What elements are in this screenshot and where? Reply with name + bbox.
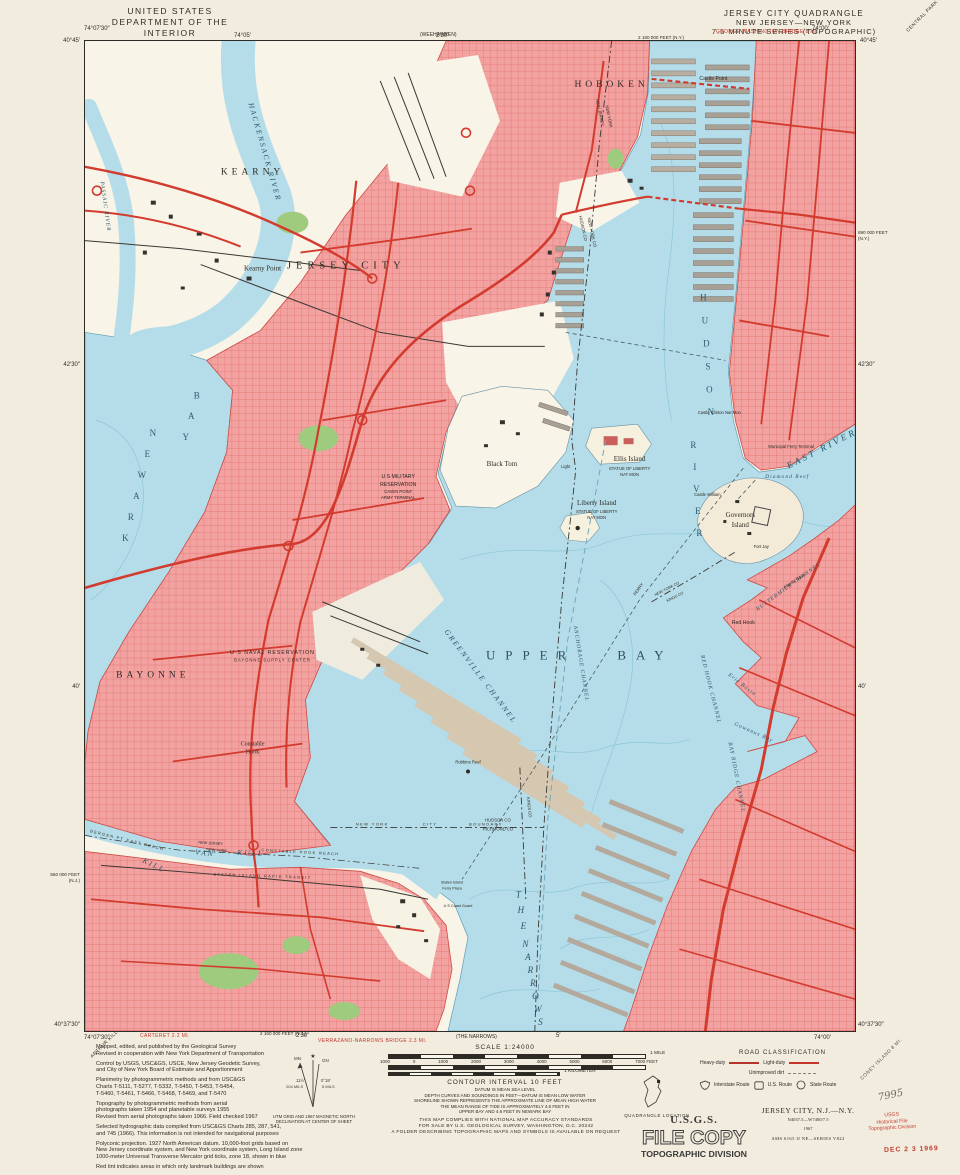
quad-title: JERSEY CITY QUADRANGLE: [686, 9, 902, 18]
label-castle-clinton: Castle Clinton Nat Mon: [698, 410, 742, 415]
scale-label: SCALE 1:24000: [455, 1044, 555, 1051]
label-naval-reservation: U S NAVAL RESERVATION: [230, 650, 315, 656]
label-constable-2: Hook: [246, 750, 259, 756]
feet-tick: 1000: [380, 1059, 390, 1064]
interstate-label: Interstate Route: [714, 1082, 750, 1088]
quad-state: NEW JERSEY—NEW YORK: [686, 18, 902, 27]
label-castle-point: Castle Point: [699, 76, 727, 82]
sheet-title: JERSEY CITY, N.J.—N.Y.: [752, 1106, 864, 1115]
us-route-label: U.S. Route: [768, 1082, 792, 1088]
label-military-1: U S MILITARY: [381, 474, 415, 480]
label-military-4: ARMY TERMINAL: [381, 495, 416, 500]
state-route-circle-icon: [796, 1080, 806, 1090]
accuracy-note: THIS MAP COMPLIES WITH NATIONAL MAP ACCU…: [356, 1118, 656, 1136]
corner-br-lat: 40°37′30″: [858, 1022, 884, 1028]
tick-top-1: 74°05′: [234, 33, 251, 39]
label-kearny-point: Kearny Point: [244, 265, 281, 273]
heavy-duty-label: Heavy-duty: [700, 1060, 725, 1066]
unimproved-label: Unimproved dirt: [749, 1070, 784, 1076]
label-jersey-city: JERSEY CITY: [287, 261, 406, 272]
label-bayonne: BAYONNE: [116, 671, 189, 681]
datum-notes: DATUM IS MEAN SEA LEVEL DEPTH CURVES AND…: [360, 1087, 650, 1115]
label-black-tom: Black Tom: [487, 460, 518, 468]
label-ellis-statue: STATUE OF LIBERTY: [609, 466, 651, 471]
interstate-shield-icon: [700, 1080, 710, 1090]
label-richmond-co: RICHMOND CO: [483, 826, 514, 831]
statue-of-liberty-symbol: [576, 526, 580, 530]
scale-bar-mile: [388, 1054, 646, 1059]
us-route-shield-icon: [754, 1081, 764, 1090]
adjoining-quad-ne: CENTRAL PARK: [906, 0, 939, 33]
contour-interval: CONTOUR INTERVAL 10 FEET: [400, 1079, 610, 1086]
label-hoboken: HOBOKEN: [575, 80, 649, 90]
quadrangle-location-diagram: [636, 1074, 678, 1112]
label-hudson-co-2: HUDSON CO: [485, 817, 511, 822]
light-duty-line-icon: [789, 1062, 819, 1063]
mn-label: MN: [294, 1056, 301, 1061]
label-governors-1: Governors: [726, 511, 756, 519]
feet-tick: 4000: [537, 1059, 547, 1064]
corner-tl-lon: 74°07′30″: [84, 26, 110, 32]
map-canvas: KEARNY Kearny Point HACKENSACK RIVER PAS…: [85, 41, 855, 1031]
feet-tick: 7000 FEET: [635, 1059, 658, 1064]
mn-angle: 11½°: [296, 1078, 306, 1083]
road-note-carteret: CARTERET 2.2 MI.: [140, 1033, 190, 1039]
road-note-verrazano: VERRAZANO-NARROWS BRIDGE 2.3 MI.: [318, 1038, 427, 1044]
scale-feet-ticks: 1000 0 1000 2000 3000 4000 5000 6000 700…: [380, 1059, 658, 1064]
scale-mile-label: 1 MILE: [650, 1051, 665, 1056]
adjoining-quad-se: CONEY ISLAND 8 MI.: [860, 1038, 904, 1082]
label-nyc-boundary-2: CITY: [423, 821, 438, 826]
state-route-label: State Route: [810, 1082, 836, 1088]
feet-tick: 3000: [504, 1059, 514, 1064]
corner-br-lon: 74°00′: [814, 1035, 831, 1041]
label-liberty-island: Liberty Island: [577, 499, 617, 507]
sheet-id-block: JERSEY CITY, N.J.—N.Y. N4037.5—W7400/7.5…: [752, 1106, 864, 1141]
date-stamp: DEC 2 3 1969: [884, 1145, 939, 1154]
tick-left-2: 40′: [58, 684, 80, 690]
gn-angle: 0°18′: [321, 1078, 331, 1083]
label-constable-1: Constable: [241, 742, 265, 748]
road-note-gwb: GEORGE WASHINGTON BRIDGE 8 MI.: [716, 29, 819, 35]
feet-tick: 6000: [602, 1059, 612, 1064]
stamp-topo-division: TOPOGRAPHIC DIVISION: [641, 1150, 747, 1159]
tick-bottom-2: 5′: [556, 1033, 560, 1039]
unimproved-line-icon: [788, 1073, 816, 1074]
scale-bar-km: [388, 1072, 560, 1077]
label-fort-jay: Fort Jay: [754, 544, 770, 549]
corner-tr-lat: 40°45′: [860, 38, 877, 44]
grid-label-right: 690 000 FEET (N.Y.): [858, 230, 888, 241]
sheet-year: 1967: [752, 1126, 864, 1131]
sheet-code: N4037.5—W7400/7.5: [752, 1117, 864, 1122]
declination-caption: UTM GRID AND 1967 MAGNETIC NORTH DECLINA…: [256, 1114, 372, 1125]
label-kull: KULL: [236, 848, 264, 858]
label-red-hook: Red Hook: [732, 620, 755, 626]
adjoining-quad-bottom: (THE NARROWS): [456, 1034, 497, 1040]
road-classification: ROAD CLASSIFICATION Heavy-duty Light-dut…: [700, 1050, 865, 1090]
gn-label: GN: [322, 1058, 329, 1063]
agency-line1: UNITED STATES: [84, 6, 256, 17]
stamp-usgs: U.S.G.S.: [670, 1114, 718, 1126]
label-ellis-natmon: NAT MON: [620, 472, 639, 477]
label-ellis-island: Ellis Island: [614, 455, 646, 463]
tick-left-1: 42′30″: [52, 362, 80, 368]
corner-tl-lat: 40°45′: [44, 38, 80, 44]
stamp-file-copy: FILE COPY: [642, 1128, 746, 1149]
feet-tick: 1000: [438, 1059, 448, 1064]
grid-label-bottom: 2 160 000 FEET (N.J.): [260, 1031, 306, 1037]
feet-tick: 5000: [569, 1059, 579, 1064]
label-castle-william: Castle William: [694, 492, 721, 497]
tick-top-2: 2′30″: [436, 33, 449, 39]
label-liberty-statue: STATUE OF LIBERTY: [576, 509, 618, 514]
corner-bl-lat: 40°37′30″: [30, 1022, 80, 1028]
file-copy-stamp: U.S.G.S. FILE COPY TOPOGRAPHIC DIVISION: [638, 1110, 750, 1162]
gn-mils: 5 MILS: [322, 1084, 335, 1089]
label-governors-2: Island: [732, 521, 750, 529]
pencil-annotation: 7995: [877, 1087, 904, 1103]
label-si-ferry-1: Staten Island: [441, 880, 463, 884]
tick-right-1: 42′30″: [858, 362, 875, 368]
heavy-duty-line-icon: [729, 1062, 759, 1065]
credit-projection: Polyconic projection. 1927 North America…: [96, 1141, 321, 1161]
topo-map-sheet: UNITED STATES DEPARTMENT OF THE INTERIOR…: [0, 0, 960, 1175]
label-nyc-boundary-1: NEW YORK: [356, 821, 389, 826]
label-coast-guard: U S Coast Guard: [444, 904, 473, 908]
grid-label-left: 560 000 FEET (N.J.): [34, 872, 80, 883]
ellis-building-2: [624, 438, 634, 444]
label-liberty-natmon: NAT MON: [587, 515, 606, 520]
scale-km-label: 1 KILOMETER: [564, 1069, 596, 1074]
label-military-3: CAVEN POINT: [384, 489, 413, 494]
hackensack-mouth: [127, 326, 215, 354]
declination-diagram: ★ MN GN 11½° 204 MILS 0°18′ 5 MILS: [278, 1050, 350, 1112]
robbins-reef-light: [466, 770, 470, 774]
label-si-ferry-2: Ferry Plaza: [442, 886, 462, 890]
feet-tick: 2000: [471, 1059, 481, 1064]
label-military-2: RESERVATION: [380, 482, 416, 488]
credit-hydrography: Selected hydrographic data compiled from…: [96, 1124, 321, 1137]
label-naval-sub: BAYONNE SUPPLY CENTER: [234, 658, 311, 663]
label-municipal-ferry: Municipal Ferry Terminal: [768, 444, 814, 449]
tick-right-2: 40′: [858, 684, 866, 690]
feet-tick: 0: [413, 1059, 416, 1064]
sheet-ams: AMS 6165 II NE—SERIES V822: [752, 1136, 864, 1141]
light-duty-label: Light-duty: [763, 1060, 785, 1066]
map-area: KEARNY Kearny Point HACKENSACK RIVER PAS…: [84, 40, 856, 1032]
quad-location-dot: [657, 1080, 660, 1083]
label-robbins-reef: Robbins Reef: [455, 760, 481, 765]
historical-file-stamp: USGS Historical File Topographic Divisio…: [858, 1110, 927, 1133]
label-diamond-reef: Diamond Reef: [764, 473, 809, 480]
true-north-star-icon: ★: [310, 1053, 315, 1060]
mn-mils: 204 MILS: [286, 1084, 303, 1089]
credit-red-tint: Red tint indicates areas in which only l…: [96, 1164, 321, 1171]
corner-tr-lon: 74°00′: [812, 26, 829, 32]
road-class-title: ROAD CLASSIFICATION: [700, 1050, 865, 1056]
scale-bar-feet: [388, 1065, 646, 1070]
label-light: Light: [561, 464, 571, 469]
